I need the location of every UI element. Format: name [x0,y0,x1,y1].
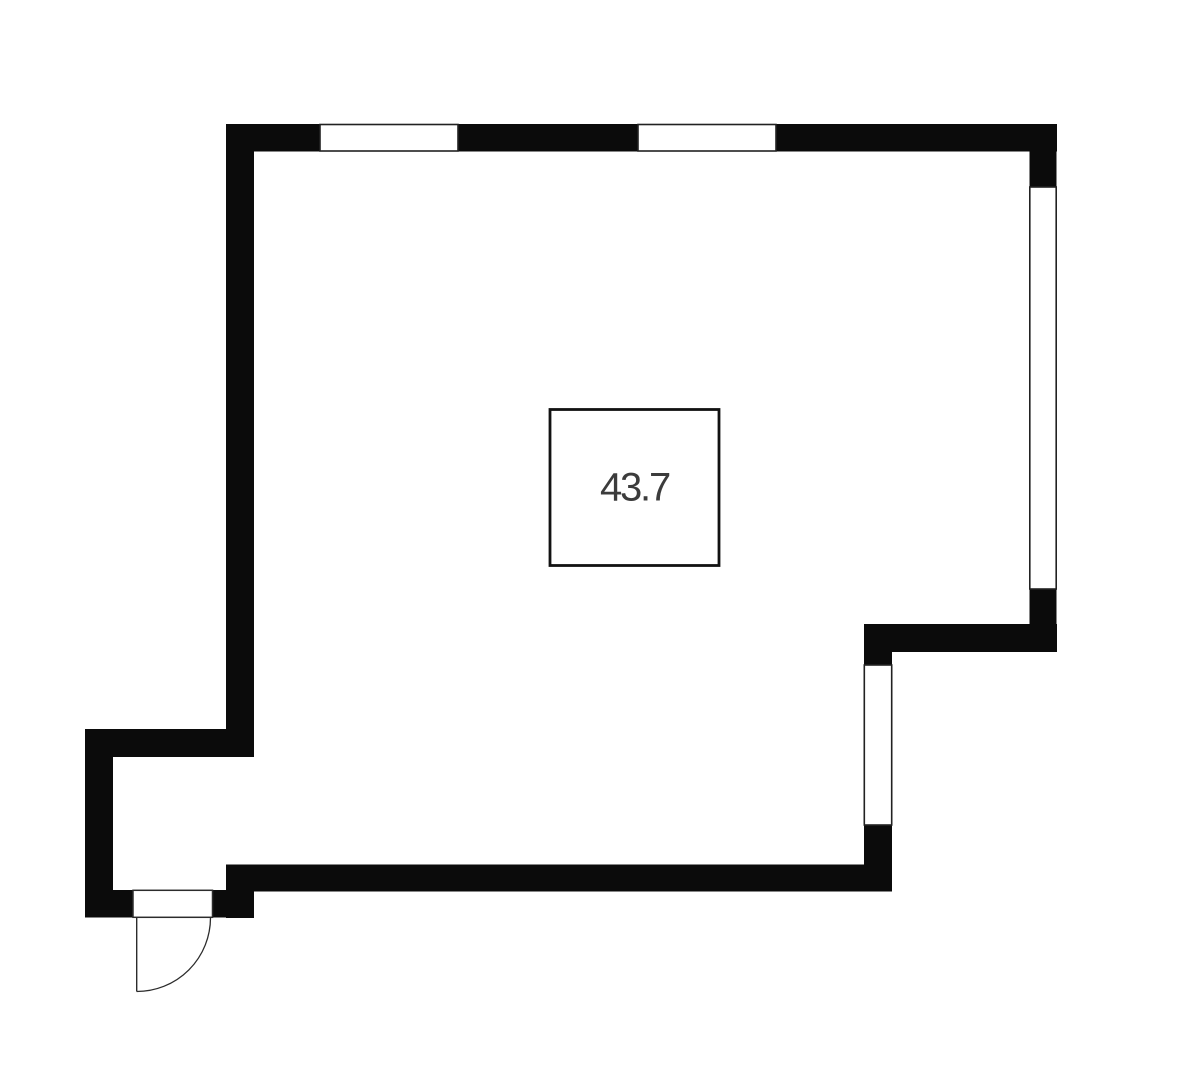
svg-text:43.7: 43.7 [600,466,670,510]
